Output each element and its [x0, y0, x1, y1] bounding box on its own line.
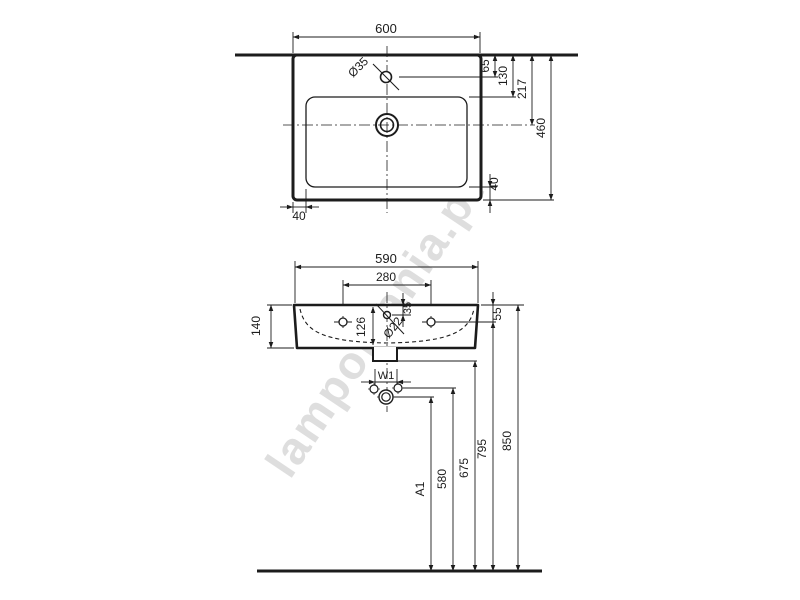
label-a1: A1 [413, 481, 427, 496]
dim-460: 460 [534, 55, 551, 200]
label-795: 795 [475, 439, 489, 459]
label-850: 850 [500, 431, 514, 451]
label-600: 600 [375, 21, 397, 36]
top-view: Ø35 600 65 130 217 [235, 21, 578, 223]
dim-600: 600 [293, 21, 480, 53]
dim-850: 850 [500, 305, 518, 571]
label-w1: W1 [378, 370, 395, 382]
washbasin-diagram: lampomania.pt Ø35 600 [0, 0, 800, 600]
label-280: 280 [376, 270, 396, 284]
dim-140: 140 [249, 305, 294, 348]
label-65: 65 [478, 59, 492, 73]
label-675: 675 [457, 458, 471, 478]
dim-130: 130 [496, 55, 513, 97]
label-55: 55 [490, 307, 504, 321]
label-460: 460 [534, 118, 548, 138]
label-217: 217 [515, 79, 529, 99]
label-40-bottom: 40 [292, 209, 306, 223]
dim-580: 580 [435, 388, 453, 571]
label-35: 35 [402, 302, 414, 314]
dim-217: 217 [515, 55, 532, 125]
label-140: 140 [249, 316, 263, 336]
technical-drawing-page: lampomania.pt Ø35 600 [0, 0, 800, 600]
label-126: 126 [354, 317, 368, 337]
label-130: 130 [496, 66, 510, 86]
label-590: 590 [375, 251, 397, 266]
label-580: 580 [435, 469, 449, 489]
dim-a1: A1 [413, 397, 431, 571]
dim-675: 675 [457, 361, 475, 571]
drain-outlet [373, 347, 397, 361]
dim-795: 795 [475, 322, 493, 571]
trap-circle-right [394, 384, 402, 392]
label-40-right: 40 [487, 177, 501, 191]
trap-fitting [368, 382, 404, 404]
trap-circle-center-outer [379, 390, 393, 404]
trap-circle-left [370, 385, 378, 393]
